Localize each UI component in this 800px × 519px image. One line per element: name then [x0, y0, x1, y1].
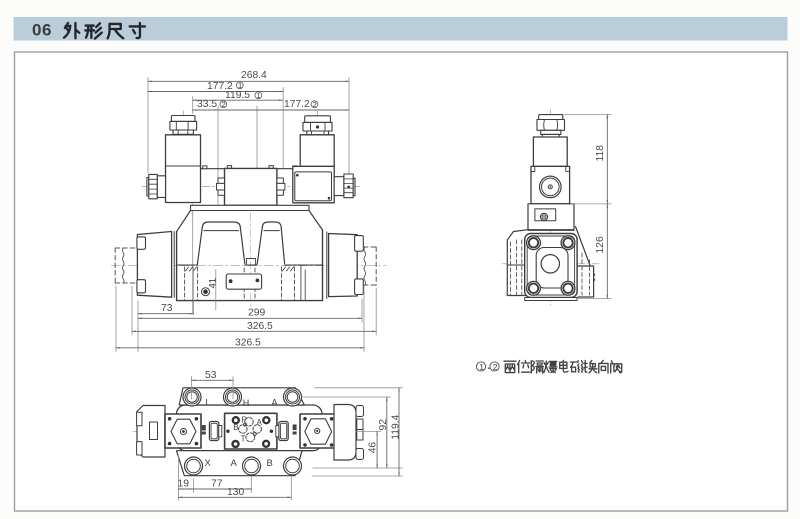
svg-text:126: 126 [595, 236, 606, 253]
svg-text:326.5: 326.5 [247, 321, 273, 332]
svg-text:41: 41 [207, 278, 218, 289]
svg-text:33.5: 33.5 [197, 99, 217, 110]
svg-text:1: 1 [238, 81, 242, 90]
svg-text:X: X [205, 458, 212, 469]
svg-text:268.4: 268.4 [241, 70, 267, 81]
svg-text:A: A [257, 418, 263, 427]
svg-text:1: 1 [479, 362, 484, 372]
svg-text:P: P [242, 415, 247, 424]
svg-text:92: 92 [378, 419, 389, 431]
svg-text:53: 53 [205, 370, 217, 381]
svg-text:A: A [272, 398, 278, 408]
svg-text:19: 19 [178, 479, 190, 490]
svg-text:L: L [206, 398, 211, 408]
svg-text:06: 06 [32, 21, 52, 40]
svg-text:A: A [231, 458, 238, 469]
svg-text:46: 46 [367, 442, 378, 454]
svg-text:119.4: 119.4 [391, 414, 402, 439]
svg-text:2: 2 [313, 100, 317, 109]
svg-text:B: B [233, 423, 238, 432]
svg-text:118: 118 [595, 145, 606, 162]
svg-text:1: 1 [257, 91, 261, 100]
svg-text:2: 2 [222, 100, 226, 109]
svg-text:77: 77 [211, 479, 223, 490]
svg-text:2: 2 [493, 362, 498, 372]
svg-text:T: T [241, 435, 246, 444]
svg-text:299: 299 [248, 308, 265, 319]
svg-text:H: H [243, 398, 250, 408]
svg-text:326.5: 326.5 [235, 337, 261, 348]
svg-text:177.2: 177.2 [284, 99, 310, 110]
svg-text:73: 73 [161, 303, 173, 314]
svg-text:119.5: 119.5 [225, 90, 250, 101]
svg-text:130: 130 [227, 487, 244, 498]
svg-text:B: B [267, 458, 273, 469]
